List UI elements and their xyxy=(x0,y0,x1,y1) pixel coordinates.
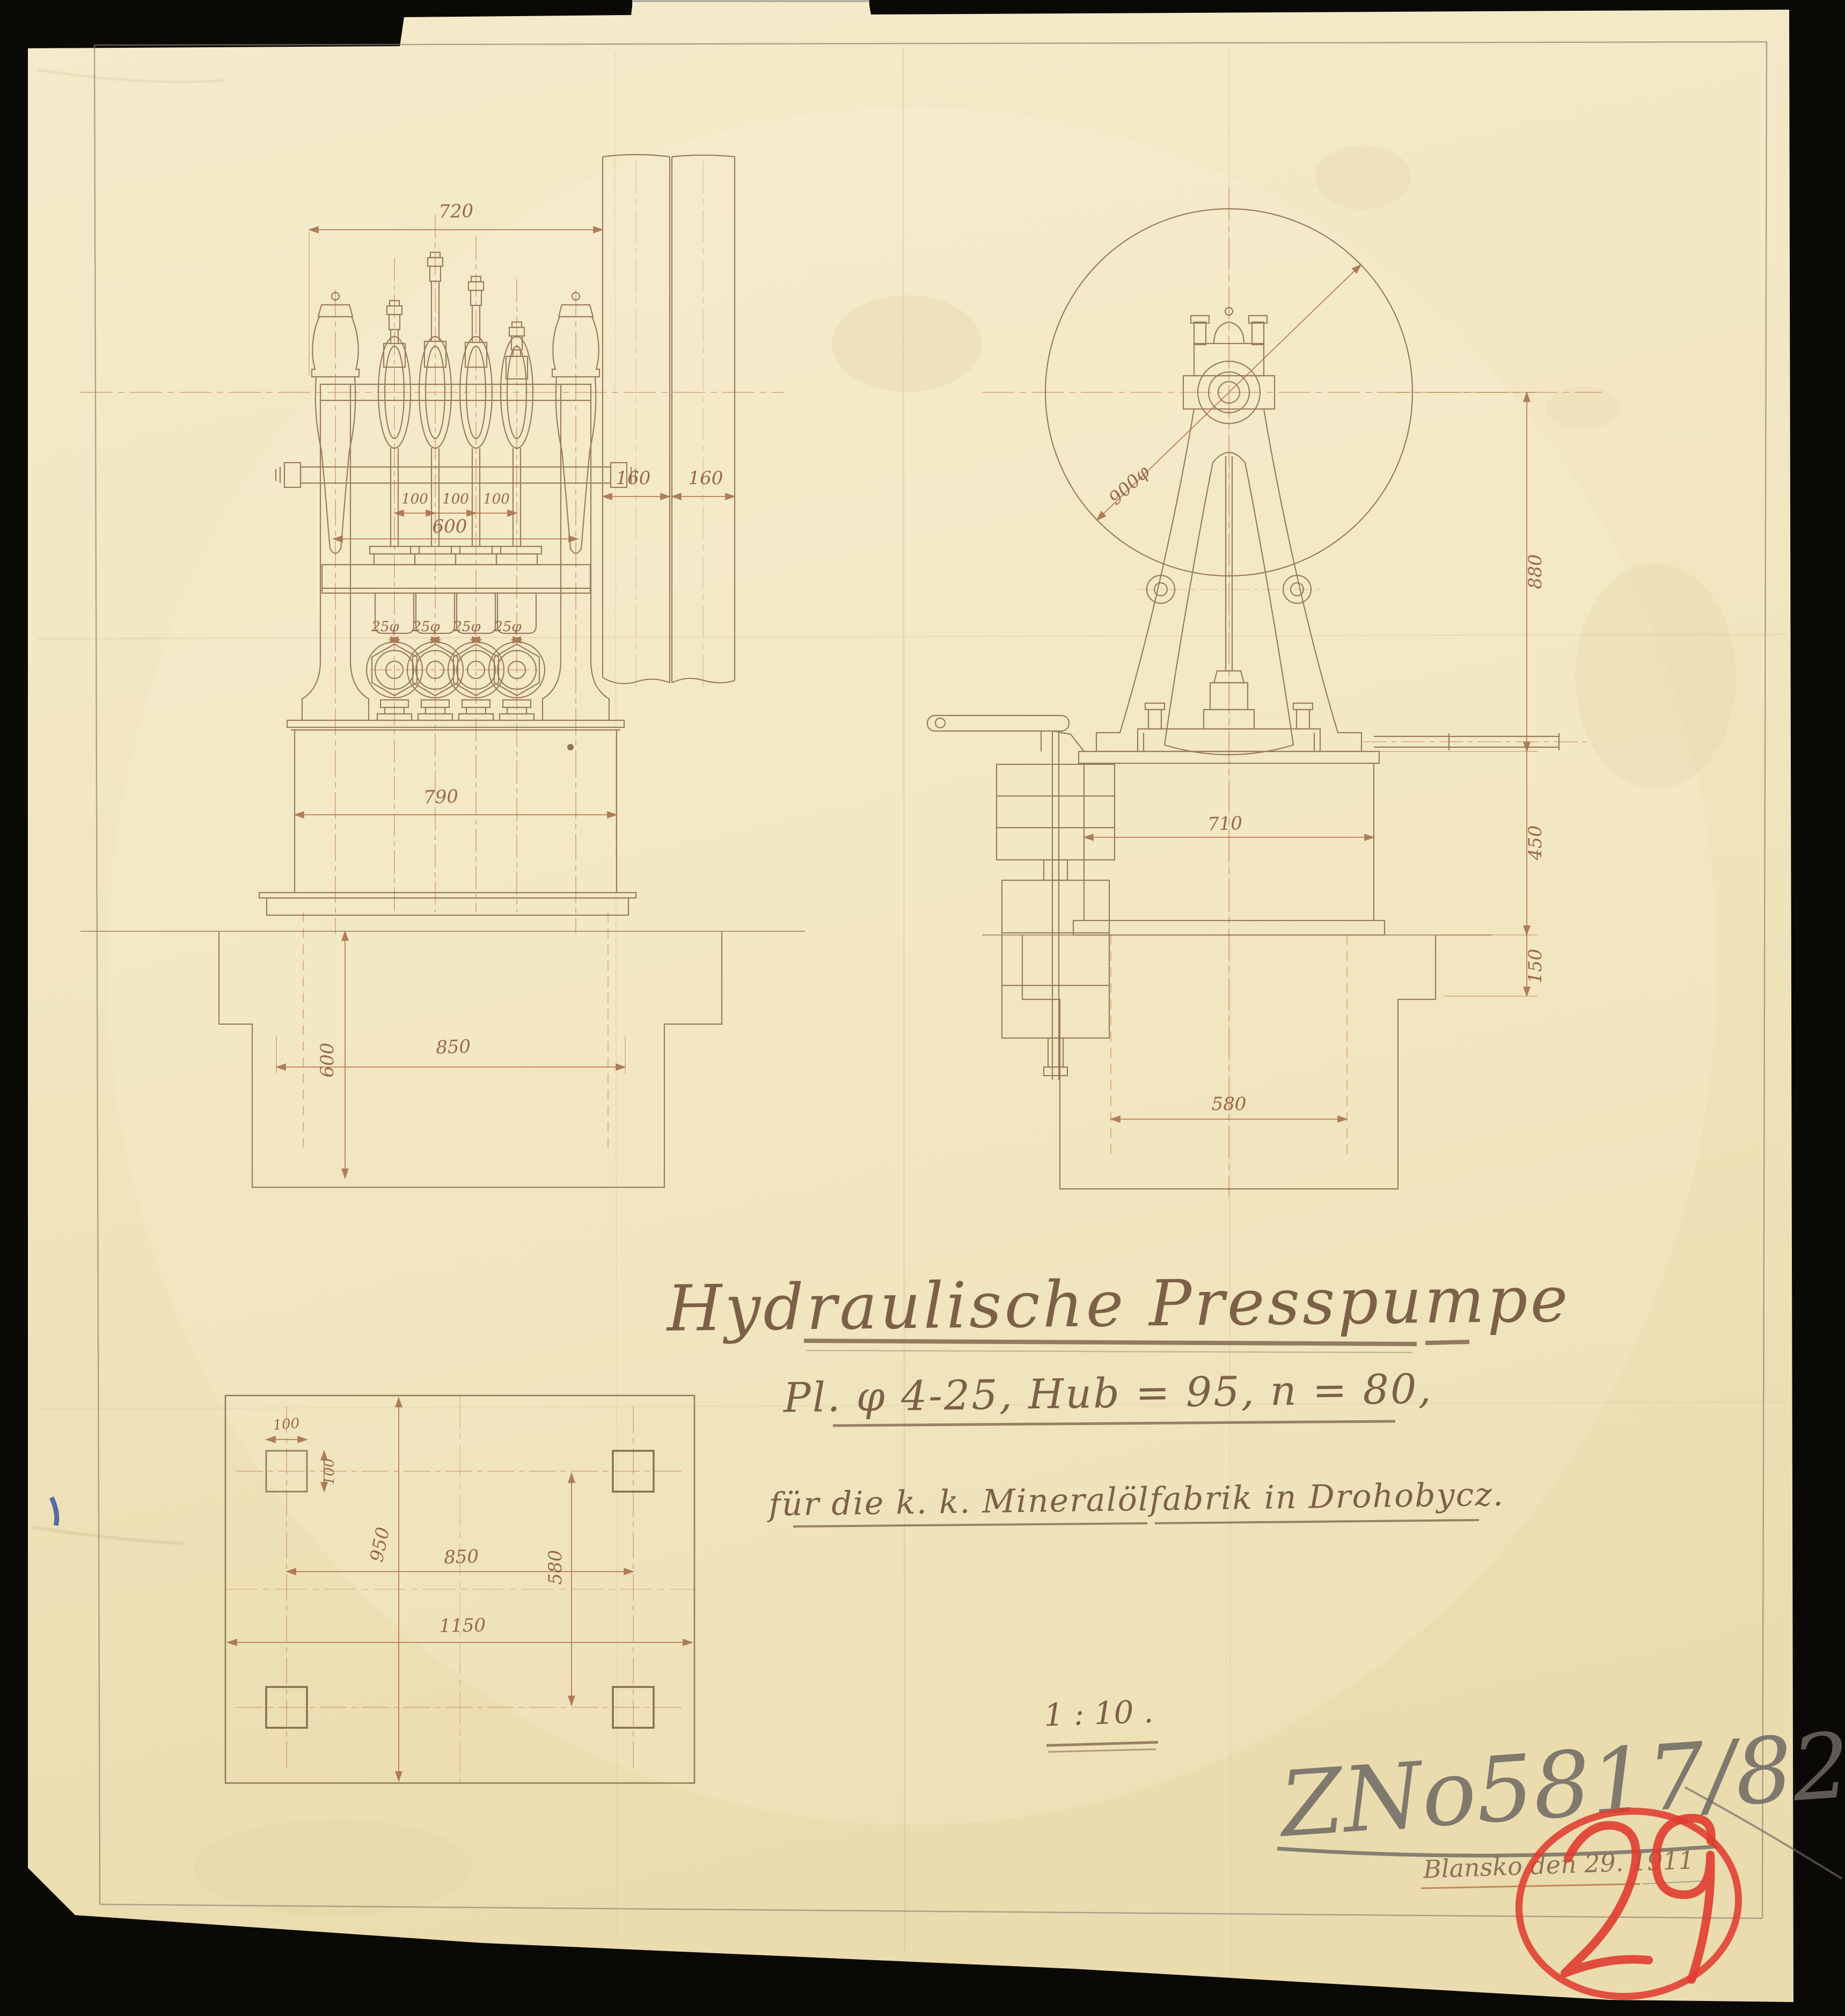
scale-label: 1 : 10 . xyxy=(1043,1693,1154,1733)
dim-plunger-3: 25φ xyxy=(452,619,481,635)
dim-plunger-2: 25φ xyxy=(412,619,440,635)
dim-bolt-hole-width: 100 xyxy=(273,1415,301,1433)
dim-plunger-4: 25φ xyxy=(493,619,522,635)
dim-rim-right: 160 xyxy=(689,468,723,489)
ink-speck xyxy=(567,744,574,750)
dim-body-height: 450 xyxy=(1525,826,1546,861)
dim-plunger-1: 25φ xyxy=(371,619,399,635)
dim-bolt-hole-height: 100 xyxy=(321,1458,338,1485)
dim-bolt-span-vertical: 580 xyxy=(545,1550,566,1585)
scanned-drawing-sheet: 720 160 160 100 100 100 600 25φ 25φ 25φ … xyxy=(0,0,1845,2016)
dim-pitch-3: 100 xyxy=(483,491,510,507)
drawing-title: Hydraulische Presspumpe xyxy=(665,1262,1571,1346)
dim-bolt-span-horizontal: 850 xyxy=(443,1546,479,1568)
dim-body-width: 710 xyxy=(1207,813,1242,835)
dim-body-width: 790 xyxy=(423,786,458,808)
spec-line: Pl. φ 4-25, Hub = 95, n = 80, xyxy=(782,1365,1433,1422)
dim-foundation-depth: 600 xyxy=(317,1043,338,1078)
dim-valve-span: 600 xyxy=(433,516,467,537)
dim-foundation-width: 850 xyxy=(435,1036,471,1058)
dim-bolt-spacing: 580 xyxy=(1212,1093,1247,1115)
dim-overall-width: 720 xyxy=(438,200,474,222)
dim-base-ledge: 150 xyxy=(1525,949,1546,984)
dim-pitch-2: 100 xyxy=(442,491,469,507)
dim-pitch-1: 100 xyxy=(401,491,428,507)
dim-shaft-height: 880 xyxy=(1525,554,1546,589)
dim-rim-left: 160 xyxy=(616,468,651,489)
dim-overall-width: 1150 xyxy=(439,1615,486,1637)
